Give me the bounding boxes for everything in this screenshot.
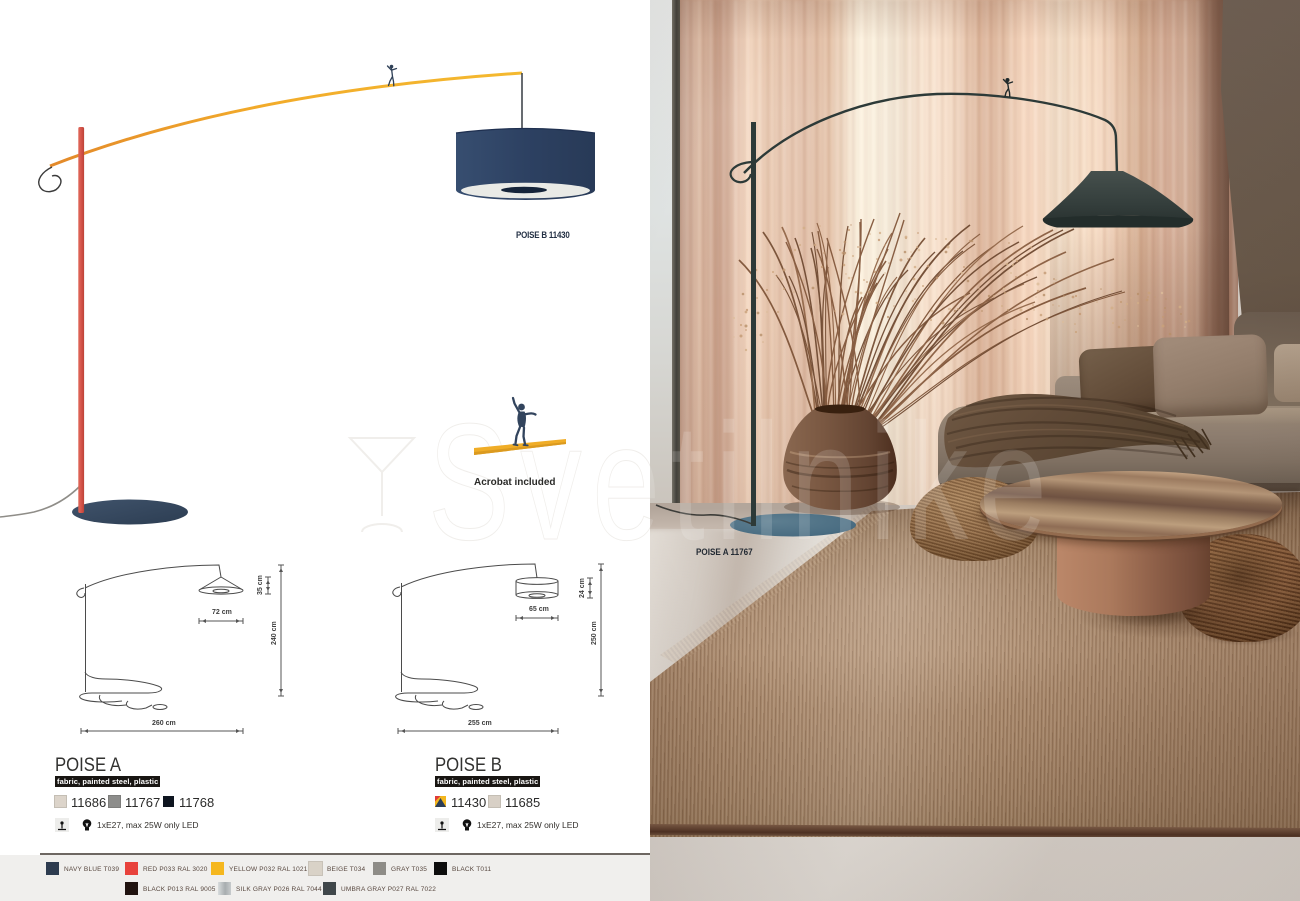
- svg-text:35 cm: 35 cm: [257, 575, 264, 595]
- svg-text:24 cm: 24 cm: [579, 578, 586, 598]
- svg-text:240 cm: 240 cm: [271, 621, 278, 645]
- svg-text:72 cm: 72 cm: [212, 609, 232, 616]
- svg-text:260 cm: 260 cm: [152, 720, 176, 727]
- svg-text:255 cm: 255 cm: [468, 720, 492, 727]
- svg-text:65 cm: 65 cm: [529, 606, 549, 613]
- svg-text:250 cm: 250 cm: [591, 621, 598, 645]
